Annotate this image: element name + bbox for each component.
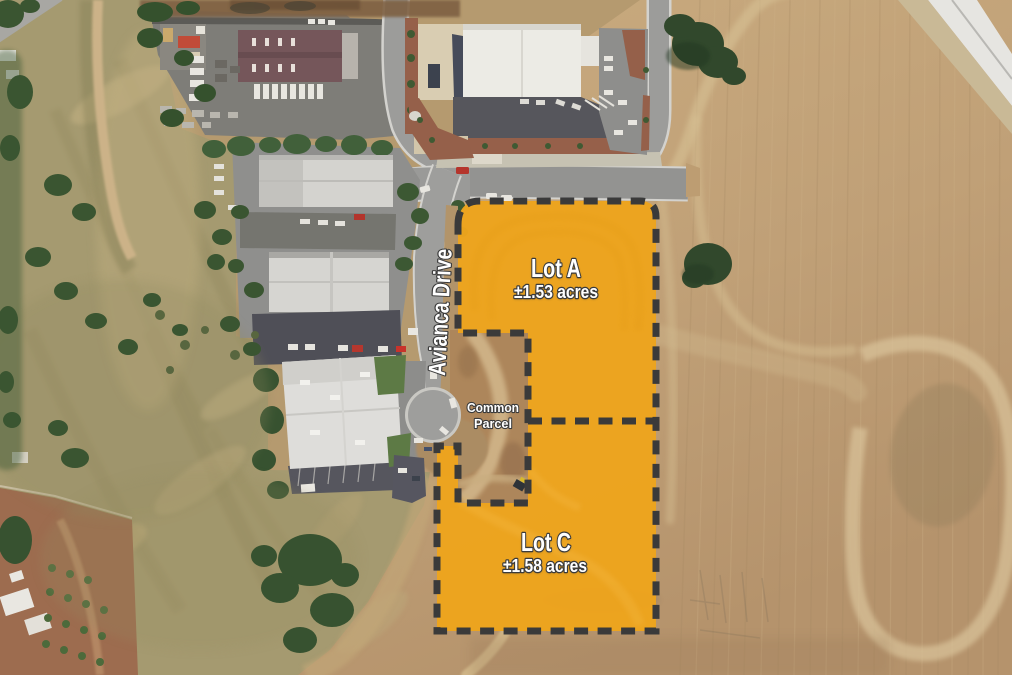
svg-text:Parcel: Parcel [474, 416, 512, 431]
svg-text:Lot A: Lot A [531, 253, 581, 283]
svg-text:Lot C: Lot C [521, 527, 571, 557]
svg-text:±1.53 acres: ±1.53 acres [514, 282, 598, 302]
svg-text:Common: Common [467, 400, 519, 415]
svg-text:±1.58 acres: ±1.58 acres [503, 556, 587, 576]
